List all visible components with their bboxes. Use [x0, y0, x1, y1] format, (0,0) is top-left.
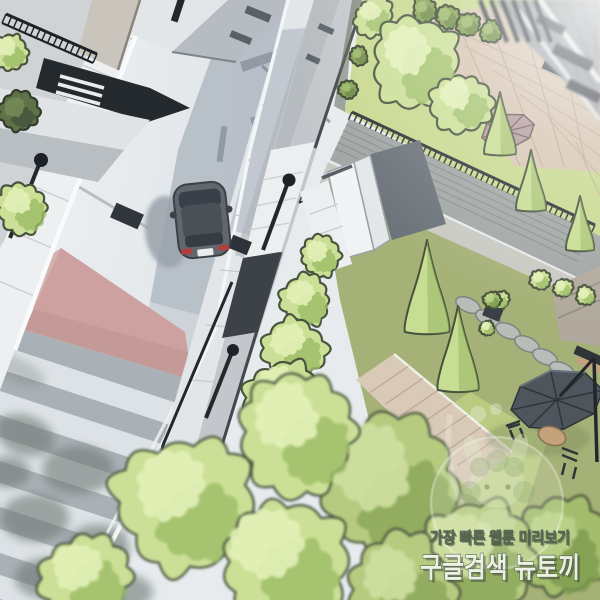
depth-haze — [280, 0, 600, 320]
watermark-tagline: 가장 빠른 웹툰 미리보기 — [430, 529, 570, 547]
taillight-right — [218, 244, 230, 251]
street-scene-illustration: 가장 빠른 웹툰 미리보기 가장 빠른 웹툰 미리보기 구글검색 뉴토끼 구글검… — [0, 0, 600, 600]
webtoon-panel: 가장 빠른 웹툰 미리보기 가장 빠른 웹툰 미리보기 구글검색 뉴토끼 구글검… — [0, 0, 600, 600]
taillight-left — [181, 248, 193, 255]
watermark-brand: 구글검색 뉴토끼 — [420, 552, 580, 583]
tree — [479, 320, 494, 335]
watermark-text: 가장 빠른 웹툰 미리보기 가장 빠른 웹툰 미리보기 구글검색 뉴토끼 구글검… — [420, 529, 583, 586]
